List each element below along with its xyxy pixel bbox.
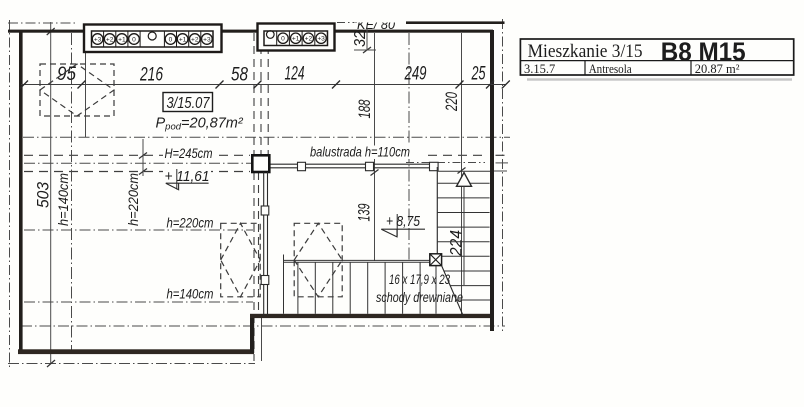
svg-text:249: 249 [404,64,427,85]
svg-text:3/15.07: 3/15.07 [167,95,211,112]
svg-text:h=140cm: h=140cm [167,287,214,302]
svg-text:3.15.7: 3.15.7 [524,62,555,76]
svg-text:188: 188 [355,99,374,118]
svg-text:224: 224 [447,230,466,257]
svg-text:216: 216 [139,65,163,86]
svg-text:schody drewniane: schody drewniane [376,290,463,305]
svg-text:H=245cm: H=245cm [165,146,213,161]
svg-text:139: 139 [356,204,374,222]
svg-text:+1: +1 [292,36,300,43]
svg-text:h=220cm: h=220cm [126,173,141,226]
svg-text:balustrada h=110cm: balustrada h=110cm [310,144,410,160]
svg-text:+ 8,75: + 8,75 [386,214,421,230]
svg-text:h=220cm: h=220cm [167,216,214,231]
svg-text:220: 220 [442,92,461,112]
svg-text:+1: +1 [179,36,187,43]
svg-text:32: 32 [352,31,369,47]
svg-text:h=140cm: h=140cm [56,173,71,226]
svg-text:0: 0 [169,36,173,43]
svg-text:20.87 m²: 20.87 m² [695,62,740,76]
svg-text:503: 503 [34,182,53,208]
svg-text:Antresola: Antresola [589,62,632,76]
svg-text:+2: +2 [191,36,199,43]
svg-text:+3: +3 [317,36,325,43]
svg-text:+ 11,61: + 11,61 [165,169,210,185]
svg-text:+2: +2 [106,36,114,43]
svg-text:+3: +3 [94,36,102,43]
svg-text:Mieszkanie 3/15: Mieszkanie 3/15 [528,42,643,62]
svg-text:+3: +3 [203,36,211,43]
svg-text:25: 25 [471,64,486,85]
svg-text:+1: +1 [118,36,126,43]
svg-text:0: 0 [281,36,285,43]
svg-text:0: 0 [132,36,136,43]
svg-text:58: 58 [231,65,248,86]
svg-text:124: 124 [285,64,305,85]
svg-text:+2: +2 [305,36,313,43]
